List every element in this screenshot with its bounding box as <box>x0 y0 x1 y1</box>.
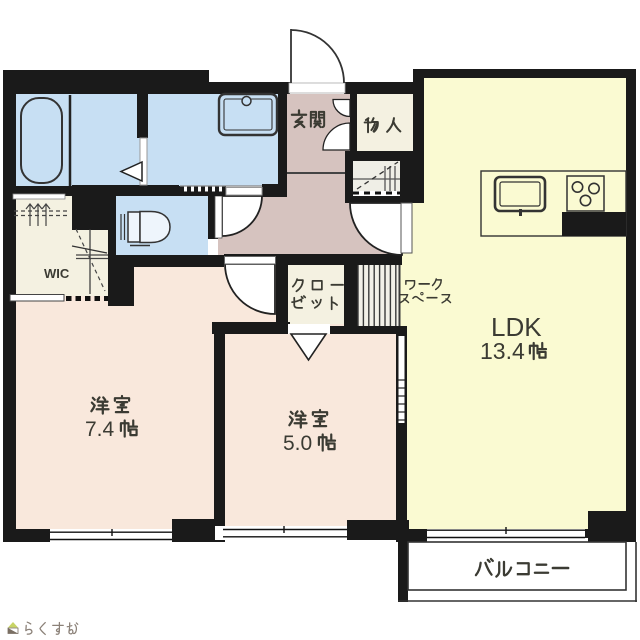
svg-text:5.0: 5.0 <box>283 432 312 455</box>
svg-text:13.4: 13.4 <box>480 338 525 364</box>
svg-text:WIC: WIC <box>44 266 70 281</box>
svg-text:7.4: 7.4 <box>85 418 115 441</box>
